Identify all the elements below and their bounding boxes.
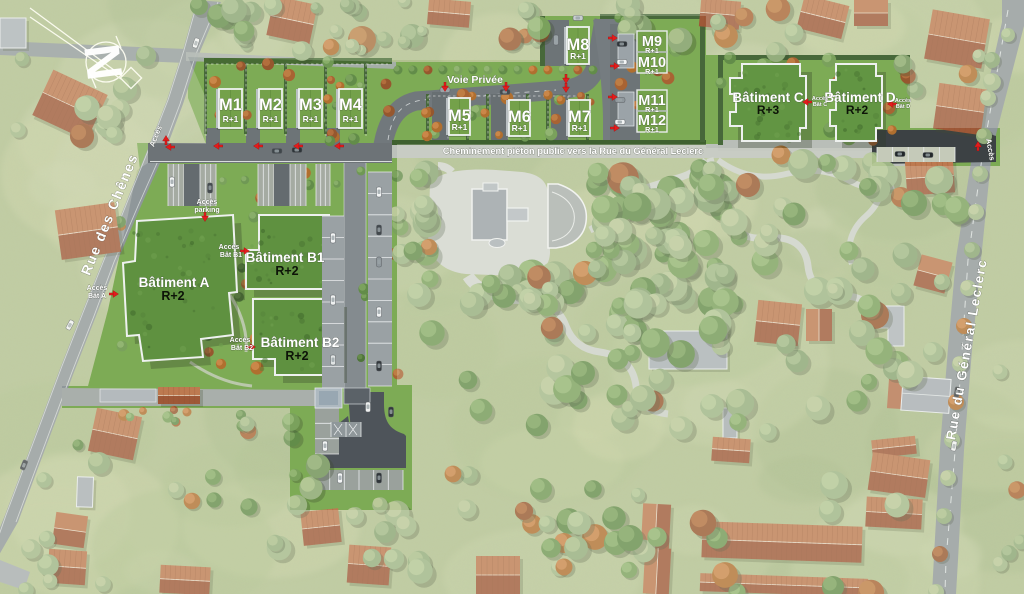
svg-text:R+1: R+1: [512, 123, 528, 133]
svg-text:R+2: R+2: [285, 349, 308, 363]
svg-text:Accès: Accès: [219, 244, 240, 251]
svg-text:Voie Privée: Voie Privée: [447, 74, 503, 86]
svg-text:Accès: Accès: [230, 337, 251, 344]
svg-text:Bât C: Bât C: [813, 102, 827, 108]
svg-text:R+1: R+1: [572, 123, 588, 133]
svg-text:N: N: [73, 41, 133, 84]
svg-text:M2: M2: [259, 96, 282, 114]
svg-text:R+1: R+1: [645, 67, 659, 76]
svg-text:M4: M4: [339, 96, 363, 114]
svg-text:R+2: R+2: [275, 264, 298, 278]
svg-text:R+1: R+1: [263, 114, 279, 124]
svg-text:Bâtiment B2: Bâtiment B2: [261, 335, 340, 350]
svg-text:R+2: R+2: [846, 103, 869, 117]
svg-text:R+1: R+1: [570, 51, 586, 61]
svg-text:R+1: R+1: [343, 114, 359, 124]
svg-text:Bât B2: Bât B2: [231, 345, 253, 352]
svg-text:Bât A: Bât A: [88, 293, 106, 300]
svg-text:R+1: R+1: [223, 114, 239, 124]
svg-text:Accès: Accès: [87, 285, 108, 292]
svg-text:Bâtiment A: Bâtiment A: [139, 275, 210, 290]
svg-text:Bât B1: Bât B1: [220, 252, 242, 259]
svg-text:R+1: R+1: [452, 122, 468, 132]
svg-text:R+1: R+1: [303, 114, 319, 124]
svg-text:M3: M3: [299, 96, 322, 114]
svg-text:R+3: R+3: [757, 103, 780, 117]
svg-text:R+1: R+1: [645, 46, 659, 55]
svg-text:Accès: Accès: [197, 199, 218, 206]
svg-text:M1: M1: [219, 96, 242, 114]
svg-text:Bât D: Bât D: [896, 104, 910, 110]
svg-text:Cheminement piéton public vers: Cheminement piéton public vers la Rue du…: [443, 146, 703, 156]
svg-text:R+1: R+1: [645, 125, 659, 134]
svg-text:R+2: R+2: [161, 289, 184, 303]
svg-text:Bâtiment B1: Bâtiment B1: [246, 250, 325, 265]
svg-text:parking: parking: [194, 207, 219, 214]
